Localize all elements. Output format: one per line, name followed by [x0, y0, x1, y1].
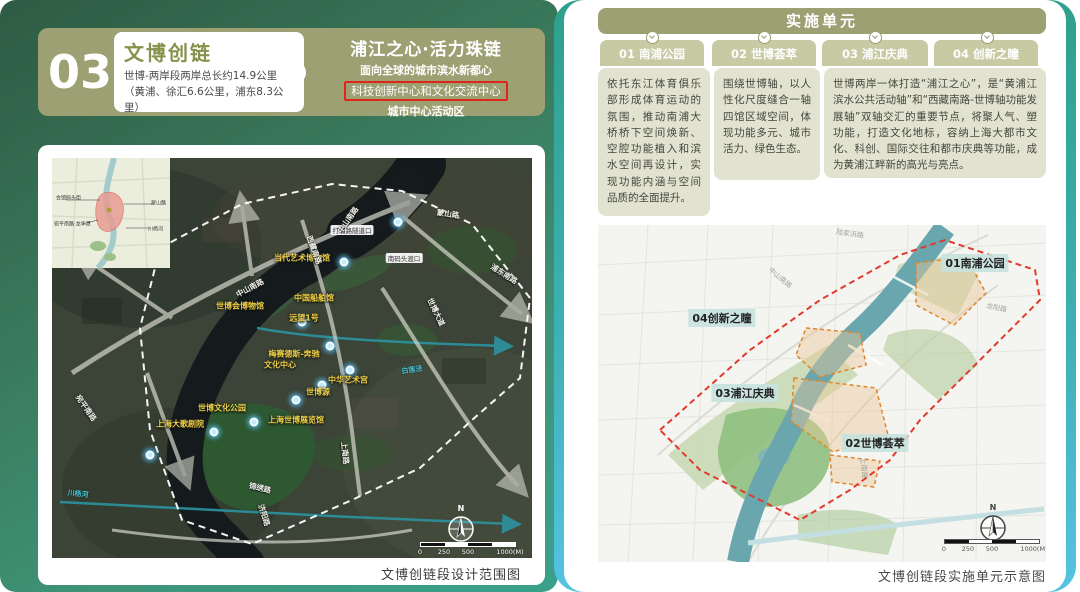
- chevron-down-icon: [761, 33, 767, 39]
- inset-label: 蒙山路: [151, 200, 166, 207]
- north-label: N: [446, 504, 476, 513]
- road-label: 上南路: [857, 457, 869, 479]
- scale-tick: 250: [438, 548, 450, 556]
- scale-tick: 1000(M): [1020, 545, 1046, 553]
- slogan-line-3: 城市中心活动区: [312, 103, 540, 119]
- check-circle-icon: [869, 31, 882, 44]
- station-dot: [394, 218, 403, 227]
- scale-tick: 500: [986, 545, 998, 553]
- unit-area-label: 01南浦公园: [941, 254, 1008, 272]
- water-label: 川杨河: [67, 488, 89, 500]
- page: 03 文博创链 世博-两岸段两岸总长约14.9公里（黄浦、徐汇6.6公里，浦东8…: [0, 0, 1080, 592]
- inset-label: 宛平南路·龙华港: [54, 221, 91, 228]
- chevron-down-icon: [649, 33, 655, 39]
- unit-area-label: 02世博荟萃: [841, 434, 908, 452]
- poi-label: 远望1号: [289, 313, 319, 324]
- left-panel: 03 文博创链 世博-两岸段两岸总长约14.9公里（黄浦、徐汇6.6公里，浦东8…: [0, 0, 558, 592]
- poi-label: 上海世博展览馆: [268, 415, 324, 426]
- design-scope-map[interactable]: 会馆码头街 蒙山路 宛平南路·龙华港 川杨河 打浦路隧道口 南码头渡口: [52, 158, 532, 558]
- section-description: 世博-两岸段两岸总长约14.9公里（黄浦、徐汇6.6公里，浦东8.3公里）: [124, 69, 294, 112]
- scale-tick: 250: [962, 545, 974, 553]
- scale-tick: 0: [418, 548, 422, 556]
- poi-label: 梅赛德斯-奔驰: [268, 349, 319, 360]
- unit-description-1: 依托东江体育俱乐部形成体育运动的氛围，推动南浦大桥桥下空间焕新、空腔功能植入和滨…: [598, 68, 710, 216]
- slogan-line-1: 面向全球的城市滨水新都心: [312, 62, 540, 78]
- location-inset-map: 会馆码头街 蒙山路 宛平南路·龙华港 川杨河: [52, 158, 170, 268]
- station-dot: [340, 258, 349, 267]
- map-caption: 文博创链段实施单元示意图: [824, 566, 1046, 585]
- map-caption: 文博创链段设计范围图: [381, 564, 521, 583]
- station-dot: [146, 451, 155, 460]
- check-circle-icon: [646, 31, 659, 44]
- chevron-right-icon: [291, 68, 301, 78]
- poi-label: 世博源: [306, 387, 330, 398]
- scale-tick: 500: [462, 548, 474, 556]
- check-circle-icon: [981, 31, 994, 44]
- section-header: 03 文博创链 世博-两岸段两岸总长约14.9公里（黄浦、徐汇6.6公里，浦东8…: [38, 28, 545, 116]
- poi-label: 世博文化公园: [198, 403, 246, 414]
- poi-label: 中国船舶馆: [294, 293, 334, 304]
- scale-bar: 0 250 500 1000(M): [944, 539, 1040, 553]
- poi-label: 上海大歌剧院: [156, 419, 204, 430]
- station-dot: [326, 342, 335, 351]
- station-dot: [346, 366, 355, 375]
- slogan-title: 浦江之心·活力珠链: [312, 35, 540, 60]
- compass-icon: [446, 514, 476, 544]
- chevron-down-icon: [872, 33, 878, 39]
- unit-area-label: 04创新之瞳: [688, 309, 755, 327]
- scale-tick: 1000(M): [496, 548, 523, 556]
- scale-bar: 0 250 500 1000(M): [420, 542, 516, 556]
- scale-bar-strip: [420, 542, 516, 547]
- unit-area-label: 03浦江庆典: [711, 384, 778, 402]
- section-number: 03: [44, 28, 116, 116]
- ferry-label: 南码头渡口: [386, 253, 423, 263]
- implementation-units-header: 实施单元: [598, 8, 1046, 34]
- section-title-card: 文博创链 世博-两岸段两岸总长约14.9公里（黄浦、徐汇6.6公里，浦东8.3公…: [114, 32, 304, 112]
- poi-label: 世博会博物馆: [216, 301, 264, 312]
- chevron-down-icon: [984, 33, 990, 39]
- section-title: 文博创链: [124, 37, 294, 66]
- scale-bar-strip: [944, 539, 1040, 544]
- inset-map-graphic: [52, 158, 170, 268]
- unit-description-2: 围绕世博轴，以人性化尺度缝合一轴四馆区域空间，体现功能多元、城市活力、绿色生态。: [714, 68, 820, 180]
- station-dot: [210, 428, 219, 437]
- implementation-units-map[interactable]: 01南浦公园 04创新之瞳 03浦江庆典 02世博荟萃 陆家浜路 中山南路 龙阳…: [598, 225, 1046, 562]
- unit-description-3: 世博两岸一体打造“浦江之心”，是“黄浦江滨水公共活动轴”和“西藏南路-世博轴功能…: [824, 68, 1046, 178]
- inset-label: 川杨河: [148, 226, 163, 233]
- slogan-block: 浦江之心·活力珠链 面向全球的城市滨水新都心 科技创新中心和文化交流中心 城市中…: [312, 35, 540, 119]
- road-label: 上南路: [338, 441, 351, 465]
- arrow-circle-icon: [283, 61, 306, 84]
- north-label: N: [978, 503, 1008, 512]
- station-dot: [292, 396, 301, 405]
- right-panel: 实施单元 01 南浦公园 02 世博荟萃 03 浦江庆典 04 创新之瞳 依托东…: [564, 0, 1066, 592]
- poi-label: 中华艺术宫: [328, 375, 368, 386]
- check-circle-icon: [758, 31, 771, 44]
- inset-label: 会馆码头街: [56, 195, 81, 202]
- scale-tick: 0: [942, 545, 946, 553]
- poi-label: 文化中心: [264, 360, 296, 371]
- design-scope-map-card: 会馆码头街 蒙山路 宛平南路·龙华港 川杨河 打浦路隧道口 南码头渡口: [38, 145, 545, 585]
- slogan-line-highlighted: 科技创新中心和文化交流中心: [344, 81, 508, 101]
- station-dot: [250, 418, 259, 427]
- right-panel-border: 实施单元 01 南浦公园 02 世博荟萃 03 浦江庆典 04 创新之瞳 依托东…: [554, 0, 1076, 592]
